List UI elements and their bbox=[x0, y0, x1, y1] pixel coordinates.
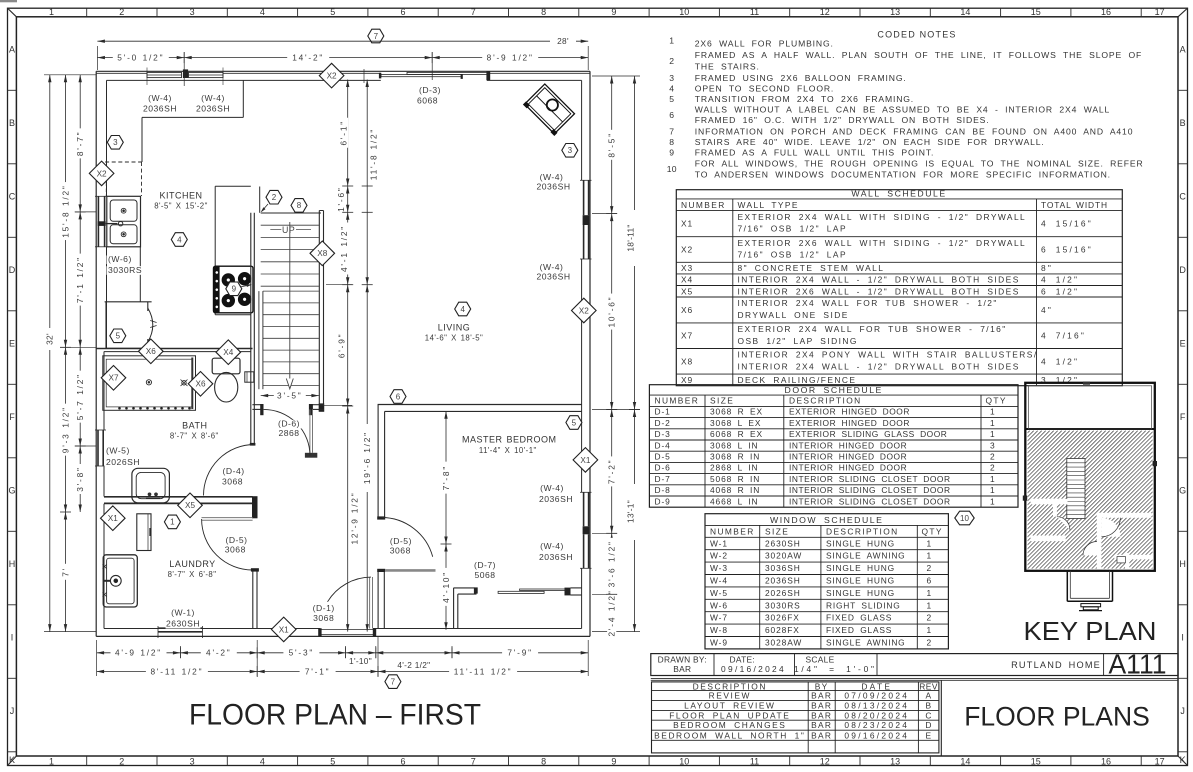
svg-text:4'-10": 4'-10" bbox=[441, 571, 451, 603]
svg-text:4: 4 bbox=[460, 305, 465, 314]
svg-text:C: C bbox=[9, 192, 16, 202]
svg-text:X8: X8 bbox=[681, 356, 693, 366]
svg-text:BAR: BAR bbox=[811, 730, 832, 740]
svg-text:2: 2 bbox=[669, 56, 674, 66]
svg-text:3068: 3068 bbox=[225, 545, 246, 555]
svg-text:X5: X5 bbox=[185, 501, 195, 510]
svg-text:NUMBER: NUMBER bbox=[655, 396, 700, 406]
svg-text:B: B bbox=[1180, 118, 1186, 128]
svg-text:WINDOW SCHEDULE: WINDOW SCHEDULE bbox=[770, 515, 883, 525]
svg-text:4 15/16": 4 15/16" bbox=[1041, 219, 1093, 229]
svg-text:NUMBER: NUMBER bbox=[710, 527, 755, 537]
svg-text:6068: 6068 bbox=[417, 96, 438, 106]
svg-text:2X6 WALL FOR PLUMBING.: 2X6 WALL FOR PLUMBING. bbox=[695, 39, 834, 49]
svg-text:4: 4 bbox=[260, 7, 265, 17]
svg-text:8: 8 bbox=[541, 756, 546, 766]
svg-text:B: B bbox=[9, 118, 15, 128]
svg-text:1: 1 bbox=[990, 407, 995, 417]
svg-text:J: J bbox=[10, 706, 15, 716]
svg-text:FIXED GLASS: FIXED GLASS bbox=[826, 613, 892, 623]
svg-text:I: I bbox=[1181, 633, 1184, 643]
svg-text:G: G bbox=[1179, 486, 1186, 496]
svg-text:11: 11 bbox=[750, 756, 759, 766]
svg-text:WALLS WITHOUT A LABEL CAN BE A: WALLS WITHOUT A LABEL CAN BE ASSUMED TO … bbox=[695, 105, 1110, 115]
svg-text:32': 32' bbox=[45, 333, 55, 345]
svg-text:17: 17 bbox=[1155, 756, 1165, 766]
svg-text:FLOOR PLANS: FLOOR PLANS bbox=[964, 701, 1150, 731]
svg-text:(D-3): (D-3) bbox=[419, 85, 441, 95]
svg-text:X1: X1 bbox=[580, 456, 590, 465]
svg-text:4: 4 bbox=[669, 84, 674, 94]
svg-text:1'-10": 1'-10" bbox=[349, 656, 372, 666]
svg-text:3020AW: 3020AW bbox=[765, 551, 802, 561]
svg-text:1: 1 bbox=[990, 418, 995, 428]
svg-text:THE STAIRS.: THE STAIRS. bbox=[695, 61, 760, 71]
svg-text:8'-5" X 15'-2": 8'-5" X 15'-2" bbox=[154, 202, 208, 211]
svg-text:DRAWN BY:: DRAWN BY: bbox=[658, 654, 707, 664]
svg-text:LIVING: LIVING bbox=[438, 323, 471, 333]
svg-text:16: 16 bbox=[1101, 7, 1111, 17]
svg-text:10: 10 bbox=[960, 514, 969, 523]
svg-text:2: 2 bbox=[272, 193, 277, 202]
svg-text:X9: X9 bbox=[681, 375, 693, 385]
svg-text:7'-9": 7'-9" bbox=[507, 648, 533, 658]
svg-text:SINGLE HUNG: SINGLE HUNG bbox=[826, 588, 895, 598]
svg-text:X8: X8 bbox=[317, 249, 327, 258]
svg-text:W-8: W-8 bbox=[710, 625, 728, 635]
svg-text:J: J bbox=[1180, 706, 1185, 716]
svg-text:1: 1 bbox=[170, 518, 175, 527]
svg-text:6 15/16": 6 15/16" bbox=[1041, 245, 1093, 255]
svg-text:13'-1": 13'-1" bbox=[625, 500, 635, 523]
svg-text:7: 7 bbox=[391, 677, 396, 686]
svg-text:6'-9": 6'-9" bbox=[337, 333, 347, 359]
svg-text:11'-4" X 10'-1": 11'-4" X 10'-1" bbox=[479, 446, 537, 455]
svg-text:2026SH: 2026SH bbox=[765, 588, 801, 598]
svg-text:FIXED GLASS: FIXED GLASS bbox=[826, 625, 892, 635]
svg-text:6068 R EX: 6068 R EX bbox=[710, 429, 763, 439]
svg-text:DESCRIPTION: DESCRIPTION bbox=[826, 527, 899, 537]
svg-text:8: 8 bbox=[669, 137, 674, 147]
svg-text:INTERIOR SLIDING CLOSET DOOR: INTERIOR SLIDING CLOSET DOOR bbox=[789, 474, 951, 484]
svg-text:3036SH: 3036SH bbox=[765, 563, 801, 573]
svg-text:7/16" OSB 1/2" LAP: 7/16" OSB 1/2" LAP bbox=[738, 250, 848, 260]
svg-text:FRAMED AS A HALF WALL. PLAN SO: FRAMED AS A HALF WALL. PLAN SOUTH OF THE… bbox=[695, 50, 1142, 60]
svg-text:1: 1 bbox=[990, 474, 995, 484]
svg-text:W-3: W-3 bbox=[710, 563, 728, 573]
svg-text:A: A bbox=[926, 691, 932, 701]
svg-text:08/20/2024: 08/20/2024 bbox=[844, 710, 909, 720]
svg-text:I: I bbox=[11, 633, 14, 643]
svg-text:D-9: D-9 bbox=[655, 496, 671, 506]
svg-text:1: 1 bbox=[927, 600, 932, 610]
svg-text:BAR: BAR bbox=[811, 701, 832, 711]
svg-text:14: 14 bbox=[960, 756, 970, 766]
svg-text:EXTERIOR 2X6 WALL WITH SIDING: EXTERIOR 2X6 WALL WITH SIDING - 1/2" DRY… bbox=[738, 238, 1027, 248]
svg-text:INTERIOR SLIDING CLOSET DOOR: INTERIOR SLIDING CLOSET DOOR bbox=[789, 485, 951, 495]
svg-text:2036SH: 2036SH bbox=[539, 494, 573, 504]
svg-text:1: 1 bbox=[49, 7, 54, 17]
svg-text:B: B bbox=[926, 701, 932, 711]
svg-text:13: 13 bbox=[890, 7, 900, 17]
svg-text:09/16/2024: 09/16/2024 bbox=[844, 730, 909, 740]
svg-text:FRAMED 16" O.C. WITH 1/2" DRYW: FRAMED 16" O.C. WITH 1/2" DRYWALL ON BOT… bbox=[695, 115, 990, 125]
svg-text:SINGLE AWNING: SINGLE AWNING bbox=[826, 638, 906, 648]
svg-text:KEY PLAN: KEY PLAN bbox=[1024, 618, 1157, 646]
svg-text:2868 L IN: 2868 L IN bbox=[710, 463, 759, 473]
svg-text:3: 3 bbox=[113, 138, 118, 147]
svg-text:4 7/16": 4 7/16" bbox=[1041, 331, 1086, 341]
svg-text:TRANSITION FROM 2X4 TO 2X6 FRA: TRANSITION FROM 2X4 TO 2X6 FRAMING. bbox=[695, 94, 914, 104]
svg-text:28': 28' bbox=[557, 36, 569, 46]
svg-text:2: 2 bbox=[119, 7, 124, 17]
svg-text:4068 R IN: 4068 R IN bbox=[710, 485, 760, 495]
svg-text:2: 2 bbox=[990, 452, 995, 462]
svg-text:1: 1 bbox=[927, 588, 932, 598]
svg-text:W-5: W-5 bbox=[710, 588, 728, 598]
svg-text:INTERIOR HINGED DOOR: INTERIOR HINGED DOOR bbox=[789, 452, 907, 462]
svg-text:K: K bbox=[1180, 755, 1186, 765]
svg-text:3: 3 bbox=[990, 440, 995, 450]
svg-text:STAIRS ARE 40" WIDE. LEAVE 1/2: STAIRS ARE 40" WIDE. LEAVE 1/2" ON EACH … bbox=[695, 137, 1045, 147]
svg-text:SIZE: SIZE bbox=[765, 527, 789, 537]
svg-text:07/09/2024: 07/09/2024 bbox=[844, 691, 909, 701]
svg-text:13: 13 bbox=[890, 756, 900, 766]
svg-text:6: 6 bbox=[400, 756, 405, 766]
svg-text:9: 9 bbox=[611, 7, 616, 17]
svg-text:W-2: W-2 bbox=[710, 551, 728, 561]
svg-text:SIZE: SIZE bbox=[710, 396, 734, 406]
svg-text:3: 3 bbox=[190, 756, 195, 766]
svg-text:C: C bbox=[925, 710, 932, 720]
svg-text:FLOOR PLAN UPDATE: FLOOR PLAN UPDATE bbox=[669, 710, 790, 720]
svg-text:QTY: QTY bbox=[922, 527, 943, 537]
svg-text:16: 16 bbox=[1101, 756, 1111, 766]
svg-text:19'-6 1/2": 19'-6 1/2" bbox=[362, 431, 372, 484]
svg-text:X2: X2 bbox=[97, 169, 107, 178]
svg-text:SINGLE AWNING: SINGLE AWNING bbox=[826, 551, 906, 561]
svg-text:D-4: D-4 bbox=[655, 440, 671, 450]
svg-text:1: 1 bbox=[927, 625, 932, 635]
svg-text:2036SH: 2036SH bbox=[536, 271, 570, 281]
svg-text:2: 2 bbox=[927, 613, 932, 623]
svg-text:5: 5 bbox=[330, 7, 335, 17]
svg-text:EXTERIOR SLIDING GLASS DOOR: EXTERIOR SLIDING GLASS DOOR bbox=[789, 429, 947, 439]
svg-text:(D-1): (D-1) bbox=[313, 603, 335, 613]
svg-text:3: 3 bbox=[190, 7, 195, 17]
svg-text:9'-3 1/2": 9'-3 1/2" bbox=[60, 406, 70, 453]
svg-text:X6: X6 bbox=[146, 347, 156, 356]
svg-text:4 1/2": 4 1/2" bbox=[1041, 356, 1079, 366]
svg-text:SINGLE HUNG: SINGLE HUNG bbox=[826, 563, 895, 573]
svg-text:E: E bbox=[926, 730, 932, 740]
svg-text:15: 15 bbox=[1031, 756, 1041, 766]
svg-text:2: 2 bbox=[119, 756, 124, 766]
svg-text:X1: X1 bbox=[279, 625, 289, 634]
svg-text:X2: X2 bbox=[579, 306, 589, 315]
svg-text:1: 1 bbox=[990, 485, 995, 495]
svg-text:10: 10 bbox=[667, 164, 677, 174]
svg-text:3030RS: 3030RS bbox=[108, 265, 142, 275]
svg-text:WALL SCHEDULE: WALL SCHEDULE bbox=[851, 189, 946, 199]
svg-text:(W-5): (W-5) bbox=[106, 446, 130, 456]
svg-text:5: 5 bbox=[572, 418, 577, 427]
svg-text:G: G bbox=[8, 486, 15, 496]
svg-text:BAR: BAR bbox=[673, 664, 691, 674]
svg-text:7': 7' bbox=[60, 567, 70, 577]
svg-text:F: F bbox=[9, 412, 15, 422]
svg-text:2026SH: 2026SH bbox=[106, 457, 140, 467]
svg-text:D-7: D-7 bbox=[655, 474, 671, 484]
svg-text:3068 L EX: 3068 L EX bbox=[710, 418, 761, 428]
svg-text:C: C bbox=[1179, 192, 1186, 202]
svg-text:1: 1 bbox=[669, 36, 674, 46]
svg-text:RUTLAND HOME: RUTLAND HOME bbox=[1011, 660, 1101, 670]
svg-text:X6: X6 bbox=[681, 305, 693, 315]
svg-text:BAR: BAR bbox=[811, 691, 832, 701]
svg-text:(W-4): (W-4) bbox=[540, 541, 564, 551]
svg-text:4 1/2": 4 1/2" bbox=[1041, 275, 1079, 285]
svg-text:8'-11 1/2": 8'-11 1/2" bbox=[150, 666, 203, 676]
svg-text:18'-11": 18'-11" bbox=[625, 224, 635, 251]
svg-text:11'-11 1/2": 11'-11 1/2" bbox=[454, 666, 513, 676]
svg-text:8: 8 bbox=[297, 201, 302, 210]
svg-text:6: 6 bbox=[927, 576, 932, 586]
svg-text:14: 14 bbox=[960, 7, 970, 17]
svg-text:8'-7" X 8'-6": 8'-7" X 8'-6" bbox=[170, 432, 219, 441]
svg-text:W-7: W-7 bbox=[710, 613, 728, 623]
svg-text:X6: X6 bbox=[195, 380, 205, 389]
svg-text:4": 4" bbox=[1041, 305, 1053, 315]
svg-text:1: 1 bbox=[49, 756, 54, 766]
svg-text:3'-8": 3'-8" bbox=[75, 466, 85, 492]
svg-text:7'-2": 7'-2" bbox=[607, 459, 617, 485]
svg-text:11: 11 bbox=[750, 7, 759, 17]
svg-text:7: 7 bbox=[471, 756, 476, 766]
svg-text:X2: X2 bbox=[327, 72, 337, 81]
svg-text:OSB 1/2" LAP SIDING: OSB 1/2" LAP SIDING bbox=[738, 336, 858, 346]
svg-text:FRAMED USING 2X6 BALLOON FRAMI: FRAMED USING 2X6 BALLOON FRAMING. bbox=[695, 73, 907, 83]
svg-text:9: 9 bbox=[232, 285, 237, 294]
svg-text:4: 4 bbox=[177, 235, 182, 244]
svg-text:(D-5): (D-5) bbox=[390, 536, 412, 546]
svg-text:(D-7): (D-7) bbox=[474, 560, 496, 570]
svg-text:2036SH: 2036SH bbox=[196, 103, 230, 113]
svg-text:W-6: W-6 bbox=[710, 600, 728, 610]
svg-text:7: 7 bbox=[669, 126, 674, 136]
svg-text:NUMBER: NUMBER bbox=[681, 200, 726, 210]
svg-text:4'-9 1/2": 4'-9 1/2" bbox=[115, 648, 162, 658]
svg-text:H: H bbox=[9, 559, 16, 569]
svg-text:BEDROOM WALL NORTH 1": BEDROOM WALL NORTH 1" bbox=[654, 730, 805, 740]
svg-text:REVIEW: REVIEW bbox=[709, 691, 751, 701]
svg-text:(W-4): (W-4) bbox=[540, 262, 564, 272]
svg-text:8": 8" bbox=[1041, 263, 1053, 273]
svg-text:INTERIOR SLIDING CLOSET DOOR: INTERIOR SLIDING CLOSET DOOR bbox=[789, 496, 951, 506]
svg-text:6: 6 bbox=[396, 392, 401, 401]
svg-text:7'-1 1/2": 7'-1 1/2" bbox=[75, 256, 85, 303]
svg-text:(D-4): (D-4) bbox=[223, 466, 245, 476]
svg-text:5: 5 bbox=[116, 332, 121, 341]
svg-text:INTERIOR 2X4 WALL - 1/2" DRYWA: INTERIOR 2X4 WALL - 1/2" DRYWALL BOTH SI… bbox=[738, 361, 1020, 371]
svg-text:5'-3": 5'-3" bbox=[289, 648, 315, 658]
svg-text:D-8: D-8 bbox=[655, 485, 671, 495]
svg-text:X4: X4 bbox=[681, 275, 693, 285]
svg-text:INTERIOR 2X4 WALL - 1/2" DRYWA: INTERIOR 2X4 WALL - 1/2" DRYWALL BOTH SI… bbox=[738, 275, 1020, 285]
svg-text:12: 12 bbox=[820, 7, 830, 17]
svg-text:X3: X3 bbox=[681, 263, 693, 273]
svg-text:D-3: D-3 bbox=[655, 429, 671, 439]
svg-text:2'-4 1/2": 2'-4 1/2" bbox=[607, 589, 617, 636]
svg-text:9: 9 bbox=[611, 756, 616, 766]
svg-text:1/4" = 1'-0": 1/4" = 1'-0" bbox=[794, 664, 877, 674]
svg-text:3068 R IN: 3068 R IN bbox=[710, 452, 760, 462]
svg-text:1: 1 bbox=[927, 538, 932, 548]
svg-text:W-1: W-1 bbox=[710, 538, 728, 548]
svg-text:3: 3 bbox=[669, 73, 674, 83]
svg-text:8'-7": 8'-7" bbox=[75, 131, 85, 157]
svg-text:X2: X2 bbox=[681, 245, 693, 255]
svg-text:A: A bbox=[9, 45, 15, 55]
svg-text:D-6: D-6 bbox=[655, 463, 671, 473]
svg-text:5'-7 1/2": 5'-7 1/2" bbox=[75, 373, 85, 420]
svg-text:(D-5): (D-5) bbox=[225, 535, 247, 545]
svg-text:14'-2": 14'-2" bbox=[292, 53, 324, 63]
svg-text:F: F bbox=[1180, 412, 1186, 422]
svg-text:FRAMED AS A FULL WALL UNTIL TH: FRAMED AS A FULL WALL UNTIL THIS POINT. bbox=[695, 148, 934, 158]
svg-text:8'-7" X 6'-8": 8'-7" X 6'-8" bbox=[168, 570, 217, 579]
svg-text:12: 12 bbox=[820, 756, 830, 766]
svg-text:(W-4): (W-4) bbox=[540, 172, 564, 182]
svg-text:5: 5 bbox=[330, 756, 335, 766]
svg-text:6: 6 bbox=[400, 7, 405, 17]
svg-text:EXTERIOR 2X4 WALL FOR TUB SHO: EXTERIOR 2X4 WALL FOR TUB SHOWER - 7/16" bbox=[738, 324, 1007, 334]
svg-text:2: 2 bbox=[927, 563, 932, 573]
svg-text:08/23/2024: 08/23/2024 bbox=[844, 720, 909, 730]
svg-text:E: E bbox=[1180, 339, 1186, 349]
svg-text:7: 7 bbox=[374, 32, 379, 41]
svg-text:3068: 3068 bbox=[313, 613, 334, 623]
svg-text:2036SH: 2036SH bbox=[536, 182, 570, 192]
svg-text:2630SH: 2630SH bbox=[166, 619, 200, 629]
svg-text:2036SH: 2036SH bbox=[765, 576, 801, 586]
svg-text:3: 3 bbox=[568, 146, 573, 155]
svg-text:SCALE: SCALE bbox=[806, 654, 835, 664]
svg-text:1: 1 bbox=[990, 429, 995, 439]
svg-text:12'-9 1/2": 12'-9 1/2" bbox=[349, 492, 359, 545]
svg-text:X4: X4 bbox=[223, 348, 233, 357]
svg-text:FOR ALL WINDOWS, THE ROUGH OPE: FOR ALL WINDOWS, THE ROUGH OPENING IS EQ… bbox=[695, 159, 1144, 169]
svg-text:(W-4): (W-4) bbox=[540, 483, 564, 493]
svg-text:TOTAL WIDTH: TOTAL WIDTH bbox=[1041, 200, 1108, 210]
svg-text:1: 1 bbox=[990, 496, 995, 506]
svg-text:9: 9 bbox=[669, 148, 674, 158]
svg-text:2036SH: 2036SH bbox=[143, 103, 177, 113]
svg-text:7: 7 bbox=[471, 7, 476, 17]
svg-text:4668 L IN: 4668 L IN bbox=[710, 496, 759, 506]
svg-text:LAYOUT REVIEW: LAYOUT REVIEW bbox=[684, 701, 775, 711]
svg-text:8" CONCRETE STEM WALL: 8" CONCRETE STEM WALL bbox=[738, 263, 885, 273]
svg-text:BATH: BATH bbox=[182, 420, 207, 430]
svg-text:BAR: BAR bbox=[811, 720, 832, 730]
svg-text:D: D bbox=[1179, 265, 1186, 275]
svg-text:7'-1": 7'-1" bbox=[305, 666, 331, 676]
svg-text:(W-4): (W-4) bbox=[148, 93, 172, 103]
svg-text:2630SH: 2630SH bbox=[765, 538, 801, 548]
svg-text:EXTERIOR HINGED DOOR: EXTERIOR HINGED DOOR bbox=[789, 407, 910, 417]
svg-text:X1: X1 bbox=[108, 514, 118, 523]
svg-text:TO ANDERSEN WINDOWS DOCUMENTAT: TO ANDERSEN WINDOWS DOCUMENTATION FOR MO… bbox=[695, 169, 1111, 179]
svg-text:10'-6": 10'-6" bbox=[607, 296, 617, 328]
svg-text:WALL TYPE: WALL TYPE bbox=[738, 200, 799, 210]
svg-text:DECK RAILING/FENCE: DECK RAILING/FENCE bbox=[738, 375, 857, 385]
svg-text:5: 5 bbox=[669, 94, 674, 104]
svg-text:15: 15 bbox=[1031, 7, 1041, 17]
svg-text:10: 10 bbox=[679, 7, 689, 17]
svg-text:5068: 5068 bbox=[474, 570, 495, 580]
svg-text:3026FX: 3026FX bbox=[765, 613, 800, 623]
svg-text:5'-0 1/2": 5'-0 1/2" bbox=[117, 53, 164, 63]
svg-text:10: 10 bbox=[679, 756, 689, 766]
svg-text:17: 17 bbox=[1155, 7, 1165, 17]
svg-text:15'-8 1/2": 15'-8 1/2" bbox=[60, 184, 70, 237]
svg-text:1: 1 bbox=[927, 551, 932, 561]
svg-text:D: D bbox=[925, 720, 932, 730]
svg-text:A: A bbox=[1180, 45, 1186, 55]
svg-text:INTERIOR 2X4 PONY WALL WITH ST: INTERIOR 2X4 PONY WALL WITH STAIR BALLUS… bbox=[738, 350, 1038, 360]
svg-text:3068: 3068 bbox=[390, 546, 411, 556]
svg-text:2036SH: 2036SH bbox=[539, 552, 573, 562]
svg-text:3'-6 1/2": 3'-6 1/2" bbox=[607, 540, 617, 587]
svg-text:EXTERIOR 2X4 WALL WITH SIDING: EXTERIOR 2X4 WALL WITH SIDING - 1/2" DRY… bbox=[738, 212, 1027, 222]
svg-text:A111: A111 bbox=[1109, 649, 1167, 680]
svg-text:KITCHEN: KITCHEN bbox=[159, 190, 202, 200]
svg-text:DOOR SCHEDULE: DOOR SCHEDULE bbox=[785, 385, 883, 395]
svg-text:X7: X7 bbox=[681, 331, 693, 341]
svg-text:6'-1": 6'-1" bbox=[339, 120, 349, 146]
svg-text:INTERIOR 2X6 WALL - 1/2" DRYWA: INTERIOR 2X6 WALL - 1/2" DRYWALL BOTH SI… bbox=[738, 286, 1020, 296]
svg-text:MASTER BEDROOM: MASTER BEDROOM bbox=[462, 435, 557, 445]
svg-text:H: H bbox=[1179, 559, 1186, 569]
svg-text:W-4: W-4 bbox=[710, 576, 728, 586]
svg-text:EXTERIOR HINGED DOOR: EXTERIOR HINGED DOOR bbox=[789, 418, 910, 428]
svg-text:RIGHT SLIDING: RIGHT SLIDING bbox=[826, 600, 901, 610]
svg-text:7/16" OSB 1/2" LAP: 7/16" OSB 1/2" LAP bbox=[738, 224, 848, 234]
svg-text:09/16/2024: 09/16/2024 bbox=[721, 664, 786, 674]
svg-text:BEDROOM CHANGES: BEDROOM CHANGES bbox=[673, 720, 786, 730]
svg-text:(W-6): (W-6) bbox=[108, 254, 132, 264]
svg-text:5068 R IN: 5068 R IN bbox=[710, 474, 760, 484]
svg-text:6: 6 bbox=[669, 110, 674, 120]
svg-text:INTERIOR HINGED DOOR: INTERIOR HINGED DOOR bbox=[789, 463, 907, 473]
svg-text:DRYWALL ONE SIDE: DRYWALL ONE SIDE bbox=[738, 310, 849, 320]
svg-text:K: K bbox=[9, 755, 15, 765]
svg-text:14'-6" X 18'-5": 14'-6" X 18'-5" bbox=[425, 334, 483, 343]
svg-text:(D-6): (D-6) bbox=[278, 419, 300, 429]
svg-text:4: 4 bbox=[260, 756, 265, 766]
svg-text:W-9: W-9 bbox=[710, 638, 728, 648]
svg-text:SINGLE HUNG: SINGLE HUNG bbox=[826, 576, 895, 586]
svg-text:INFORMATION ON PORCH AND DECK: INFORMATION ON PORCH AND DECK FRAMING CA… bbox=[695, 126, 1134, 136]
svg-text:8'-5": 8'-5" bbox=[607, 132, 617, 158]
svg-text:4'-2 1/2": 4'-2 1/2" bbox=[397, 660, 430, 670]
svg-text:7'-8": 7'-8" bbox=[441, 465, 451, 491]
svg-text:D-2: D-2 bbox=[655, 418, 671, 428]
svg-text:11'-8 1/2": 11'-8 1/2" bbox=[368, 128, 378, 180]
svg-text:CODED NOTES: CODED NOTES bbox=[877, 30, 956, 40]
svg-text:X5: X5 bbox=[681, 286, 693, 296]
svg-text:INTERIOR HINGED DOOR: INTERIOR HINGED DOOR bbox=[789, 440, 907, 450]
